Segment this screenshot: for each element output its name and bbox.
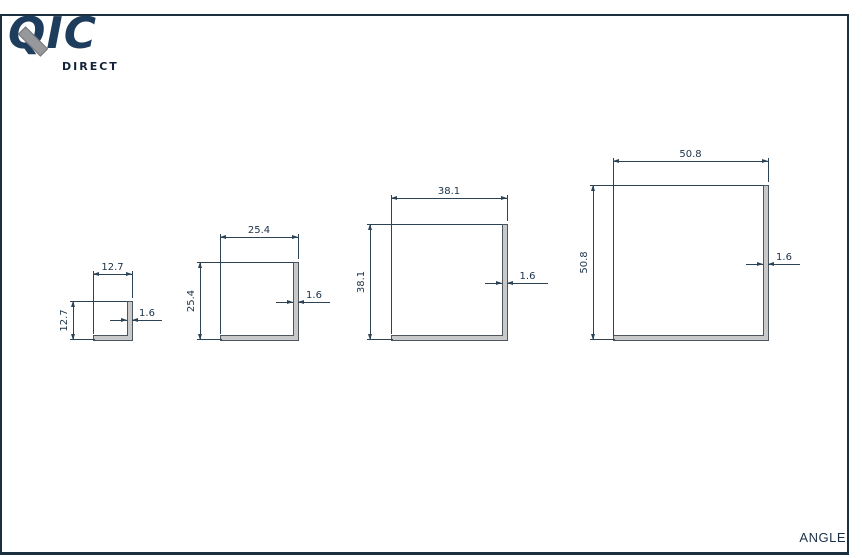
width-dimension-label: 50.8 <box>613 149 768 160</box>
angle-profile <box>93 301 133 342</box>
extension-line <box>507 195 508 221</box>
extension-line <box>132 271 133 298</box>
extension-line <box>590 339 615 340</box>
height-dimension-line <box>370 224 371 340</box>
thickness-dimension-label: 1.6 <box>132 308 162 319</box>
width-dimension-line <box>613 161 768 162</box>
width-dimension-line <box>391 198 507 199</box>
height-dimension-line <box>593 185 594 340</box>
qic-direct-logo: QIC DIRECT <box>8 16 138 76</box>
drawing-sheet: QIC DIRECT 12.7 12.7 1.6 25.4 <box>0 0 862 558</box>
height-dimension-label: 38.1 <box>356 224 368 340</box>
extension-line <box>70 339 95 340</box>
thickness-dimension-label: 1.6 <box>298 290 330 301</box>
extension-line <box>197 339 222 340</box>
extension-line <box>590 185 763 186</box>
width-dimension-label: 38.1 <box>391 186 507 197</box>
width-dimension-label: 25.4 <box>220 225 298 236</box>
extension-line <box>768 158 769 182</box>
extension-line <box>220 234 221 334</box>
thickness-dimension-label: 1.6 <box>768 252 800 263</box>
height-dimension-label: 12.7 <box>59 301 71 340</box>
height-dimension-label: 50.8 <box>579 185 591 340</box>
thickness-dimension-line <box>507 283 548 284</box>
logo-subtext: DIRECT <box>62 60 119 73</box>
thickness-dimension-label: 1.6 <box>507 271 548 282</box>
height-dimension-label: 25.4 <box>186 262 198 340</box>
extension-line <box>367 339 393 340</box>
extension-line <box>298 234 299 259</box>
arrowhead-right-icon <box>757 262 763 266</box>
arrowhead-right-icon <box>121 318 127 322</box>
width-dimension-label: 12.7 <box>93 262 132 273</box>
arrowhead-right-icon <box>287 300 293 304</box>
arrowhead-right-icon <box>496 281 502 285</box>
extension-line <box>70 301 127 302</box>
extension-line <box>197 262 293 263</box>
sheet-title: ANGLE <box>780 530 846 545</box>
width-dimension-line <box>220 237 298 238</box>
extension-line <box>367 224 502 225</box>
extension-line <box>93 271 94 334</box>
extension-line <box>391 195 392 334</box>
height-dimension-line <box>200 262 201 340</box>
